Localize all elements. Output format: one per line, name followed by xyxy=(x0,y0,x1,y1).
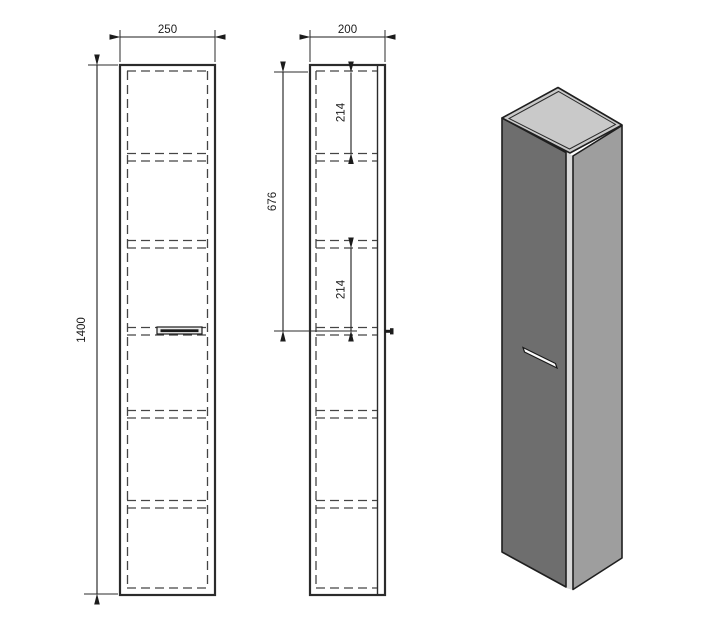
drawing-canvas: 250 1400 xyxy=(0,0,709,630)
width-dimension-label: 250 xyxy=(158,24,177,36)
side-view xyxy=(310,65,394,595)
handle-grip xyxy=(390,328,394,334)
door-handle-side xyxy=(385,328,394,334)
cabinet-technical-drawing: 250 1400 xyxy=(0,0,709,630)
panel-gap-strip xyxy=(566,152,573,590)
front-view xyxy=(120,65,215,595)
height-dimension-label: 1400 xyxy=(76,317,88,343)
handle-stem xyxy=(385,330,391,333)
side-view-hidden-edges xyxy=(316,71,377,588)
mid-shelf-dimension-label: 214 xyxy=(336,279,348,299)
handle-bar-core xyxy=(161,329,199,332)
cabinet-3d-render xyxy=(502,88,622,591)
side-panel-face xyxy=(573,126,622,590)
side-view-outline xyxy=(310,65,385,595)
top-shelf-dimension-label: 214 xyxy=(336,102,348,122)
side-view-dimensions: 200 676 214 214 xyxy=(267,24,385,331)
depth-dimension-label: 200 xyxy=(338,24,357,36)
handle-offset-dimension-label: 676 xyxy=(267,192,279,211)
door-handle-front xyxy=(157,327,202,334)
